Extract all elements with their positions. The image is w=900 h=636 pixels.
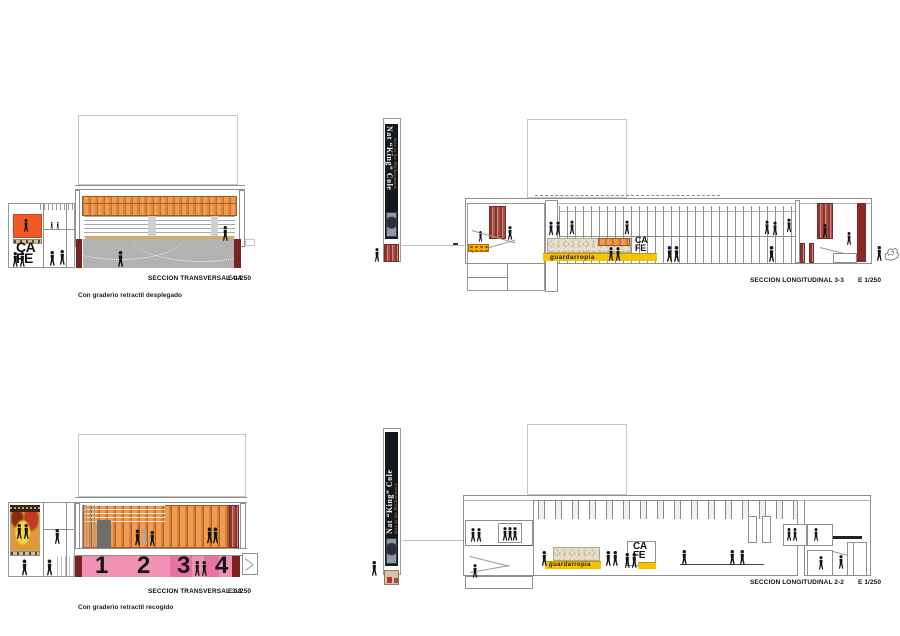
person-figure <box>729 550 736 565</box>
counter-bar <box>833 536 862 539</box>
person-figure <box>512 527 518 541</box>
person-figure <box>838 555 844 569</box>
tower-wall <box>853 542 854 576</box>
nat-king-cole-banner: Nat “King” Cole Jazz at the Philharmonic <box>385 432 398 566</box>
service-tower <box>847 542 867 576</box>
bench-rail <box>680 564 764 565</box>
person-figure <box>631 553 638 568</box>
hanging-panel <box>748 516 757 543</box>
mezzanine-rail <box>480 545 532 546</box>
person-figure <box>541 551 548 566</box>
hanging-panel <box>762 516 771 543</box>
link-canopy-line <box>402 540 463 541</box>
roof-beam-comb <box>533 500 797 519</box>
person-figure <box>612 551 619 566</box>
person-figure <box>818 556 824 570</box>
banner-subtitle: Jazz at the Philharmonic <box>393 448 398 534</box>
person-figure <box>792 528 798 541</box>
section-longitudinal-2-2: Nat “King” Cole Jazz at the Philharmonic… <box>0 0 900 636</box>
person-figure <box>813 528 819 541</box>
person-figure <box>472 564 478 578</box>
person-figure <box>739 550 746 565</box>
person-figure <box>476 528 482 542</box>
drawing-scale: E 1/250 <box>858 579 881 586</box>
person-figure <box>371 561 378 576</box>
wardrobe-label: guardarropia <box>549 562 591 568</box>
cafe-counter-band <box>638 562 656 569</box>
stone-wall <box>553 547 600 561</box>
clerestory-box <box>527 424 627 495</box>
architectural-sections-sheet: CA FE SECCION TRANSVERSAL 4-4 E 1/250 Co… <box>0 0 900 636</box>
person-figure <box>624 553 631 568</box>
banner-photo <box>386 538 397 564</box>
core-wall <box>533 500 534 576</box>
person-figure <box>605 551 612 566</box>
person-figure <box>681 550 688 565</box>
upper-room <box>807 524 833 546</box>
drawing-title: SECCION LONGITUDINAL 2-2 <box>750 579 844 586</box>
pylon-base-box <box>384 570 399 585</box>
